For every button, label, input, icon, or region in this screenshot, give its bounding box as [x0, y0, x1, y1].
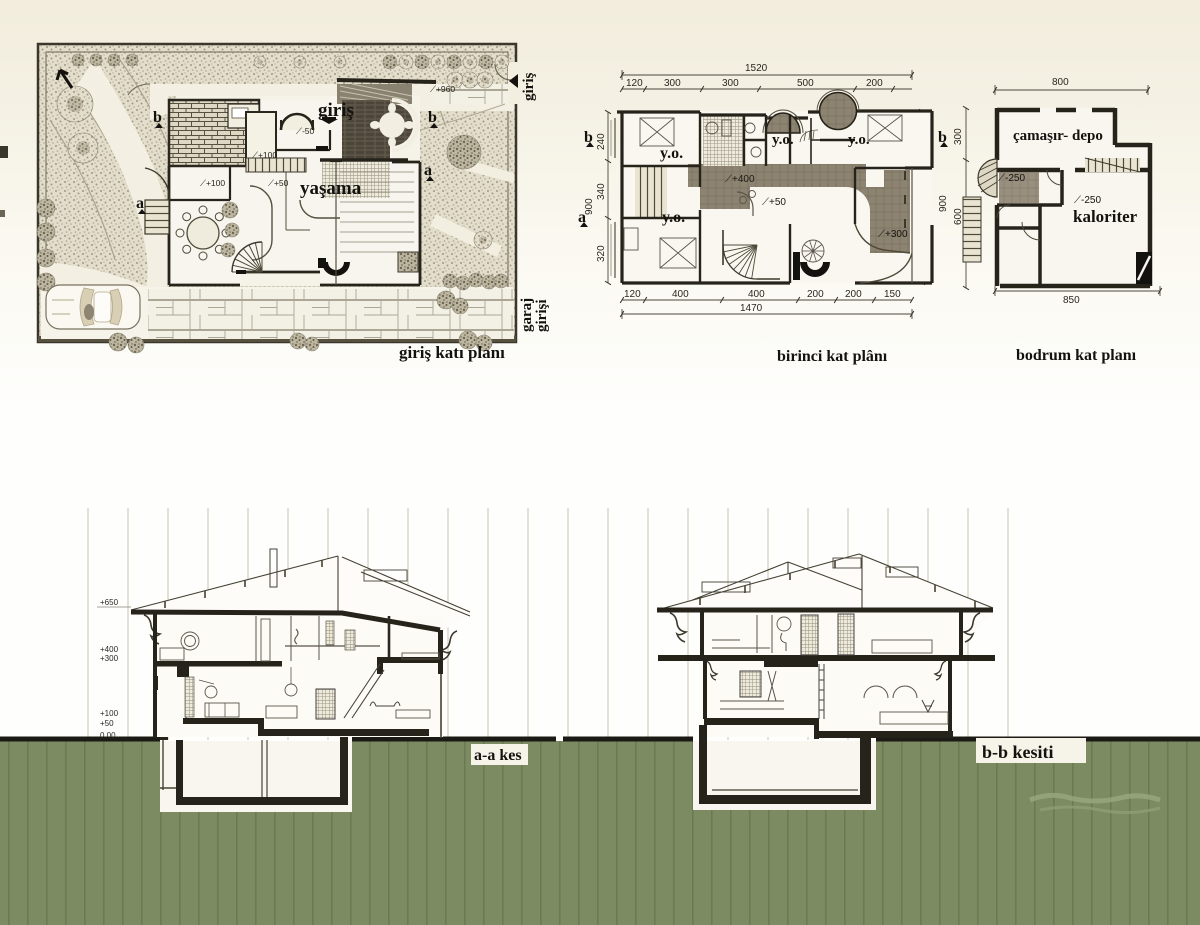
svg-text:b: b — [428, 109, 437, 126]
svg-text:⟋-250: ⟋-250 — [1074, 195, 1101, 206]
svg-text:b: b — [938, 129, 947, 146]
svg-text:340: 340 — [596, 183, 607, 200]
svg-text:b-b kesiti: b-b kesiti — [982, 742, 1054, 762]
svg-text:300: 300 — [664, 78, 681, 89]
svg-text:kaloriter: kaloriter — [1073, 207, 1138, 226]
svg-text:⟋+100: ⟋+100 — [200, 178, 225, 188]
svg-text:850: 850 — [1063, 295, 1080, 306]
svg-text:⟋+50: ⟋+50 — [762, 197, 786, 208]
svg-text:1470: 1470 — [740, 303, 763, 314]
svg-text:giriş: giriş — [521, 73, 537, 101]
svg-text:200: 200 — [807, 289, 824, 300]
svg-text:b: b — [584, 129, 593, 146]
svg-text:120: 120 — [624, 289, 641, 300]
svg-text:0.00: 0.00 — [100, 731, 116, 740]
svg-text:+300: +300 — [100, 654, 119, 663]
svg-text:birinci kat plânı: birinci kat plânı — [777, 348, 888, 365]
svg-text:150: 150 — [884, 289, 901, 300]
svg-text:bodrum kat planı: bodrum kat planı — [1016, 347, 1137, 364]
svg-text:200: 200 — [845, 289, 862, 300]
svg-text:a-a kes: a-a kes — [474, 747, 522, 764]
svg-text:⟋-250: ⟋-250 — [998, 173, 1025, 184]
svg-text:yaşama: yaşama — [300, 178, 362, 199]
svg-text:800: 800 — [1052, 77, 1069, 88]
svg-text:900: 900 — [938, 195, 949, 212]
svg-text:1520: 1520 — [745, 63, 768, 74]
svg-text:+100: +100 — [100, 709, 119, 718]
svg-text:+650: +650 — [100, 598, 119, 607]
svg-text:240: 240 — [596, 133, 607, 150]
svg-text:300: 300 — [953, 128, 964, 145]
svg-text:garaj: garaj — [519, 298, 535, 332]
svg-text:⟋-50: ⟋-50 — [296, 126, 315, 136]
svg-text:⟋+300: ⟋+300 — [878, 229, 908, 240]
svg-text:girişi: girişi — [534, 300, 550, 333]
svg-text:400: 400 — [748, 289, 765, 300]
svg-text:320: 320 — [596, 245, 607, 262]
svg-text:b: b — [153, 109, 162, 126]
svg-text:çamaşır- depo: çamaşır- depo — [1013, 128, 1103, 144]
svg-text:⟋+100: ⟋+100 — [252, 150, 277, 160]
svg-text:⟋+400: ⟋+400 — [725, 174, 755, 185]
svg-text:giriş katı planı: giriş katı planı — [399, 343, 505, 362]
svg-text:300: 300 — [722, 78, 739, 89]
svg-text:+50: +50 — [100, 719, 114, 728]
svg-text:y.o.: y.o. — [662, 209, 685, 226]
svg-text:200: 200 — [866, 78, 883, 89]
svg-text:y.o.: y.o. — [772, 132, 794, 148]
svg-text:a: a — [136, 195, 144, 212]
svg-text:+400: +400 — [100, 645, 119, 654]
svg-text:y.o.: y.o. — [660, 145, 683, 162]
svg-text:⟋+50: ⟋+50 — [268, 178, 289, 188]
svg-text:a: a — [424, 162, 432, 179]
svg-text:y.o.: y.o. — [848, 132, 870, 148]
svg-text:⟋+960: ⟋+960 — [430, 84, 455, 94]
svg-text:120: 120 — [626, 78, 643, 89]
svg-text:500: 500 — [797, 78, 814, 89]
svg-text:400: 400 — [672, 289, 689, 300]
svg-text:600: 600 — [953, 208, 964, 225]
